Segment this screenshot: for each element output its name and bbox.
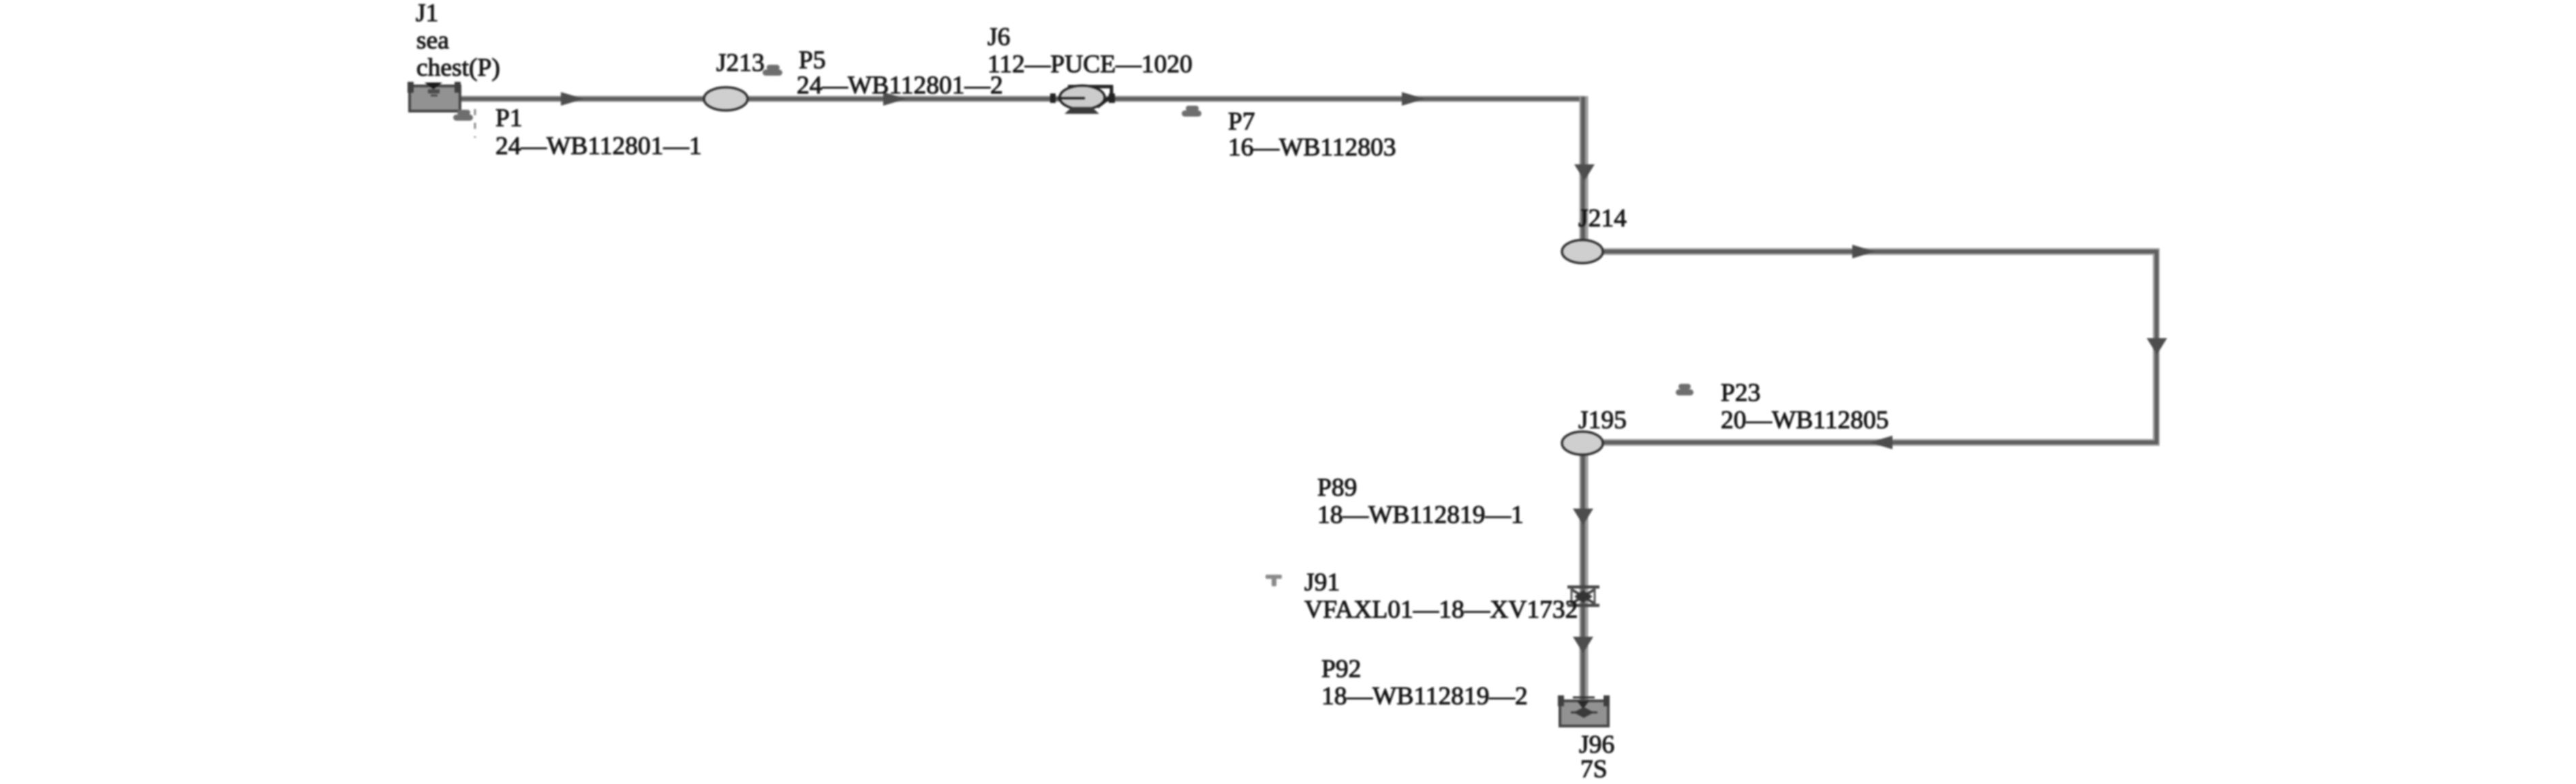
svg-text:P1: P1	[495, 104, 523, 132]
svg-text:P7: P7	[1228, 108, 1255, 136]
svg-text:J96: J96	[1579, 731, 1614, 759]
svg-text:24—WB112801—2: 24—WB112801—2	[797, 72, 1003, 100]
svg-text:J214: J214	[1578, 205, 1627, 232]
svg-text:VFAXL01—18—XV1732: VFAXL01—18—XV1732	[1304, 596, 1578, 624]
svg-text:J195: J195	[1578, 406, 1627, 434]
svg-text:P23: P23	[1721, 379, 1760, 407]
svg-text:chest(P): chest(P)	[416, 54, 500, 82]
svg-text:P92: P92	[1321, 655, 1361, 683]
svg-text:J1: J1	[416, 0, 438, 27]
svg-text:J213: J213	[716, 49, 765, 77]
svg-text:18—WB112819—1: 18—WB112819—1	[1317, 501, 1524, 529]
svg-text:sea: sea	[416, 27, 449, 55]
svg-text:24—WB112801—1: 24—WB112801—1	[495, 132, 702, 160]
svg-text:J91: J91	[1304, 569, 1340, 597]
svg-text:7S: 7S	[1580, 755, 1608, 783]
svg-text:J6: J6	[987, 23, 1010, 51]
svg-text:P89: P89	[1317, 474, 1357, 502]
svg-text:P5: P5	[799, 46, 826, 74]
svg-text:20—WB112805: 20—WB112805	[1721, 406, 1889, 434]
svg-text:18—WB112819—2: 18—WB112819—2	[1321, 682, 1528, 710]
svg-text:16—WB112803: 16—WB112803	[1228, 134, 1396, 162]
svg-text:112—PUCE—1020: 112—PUCE—1020	[987, 50, 1193, 78]
